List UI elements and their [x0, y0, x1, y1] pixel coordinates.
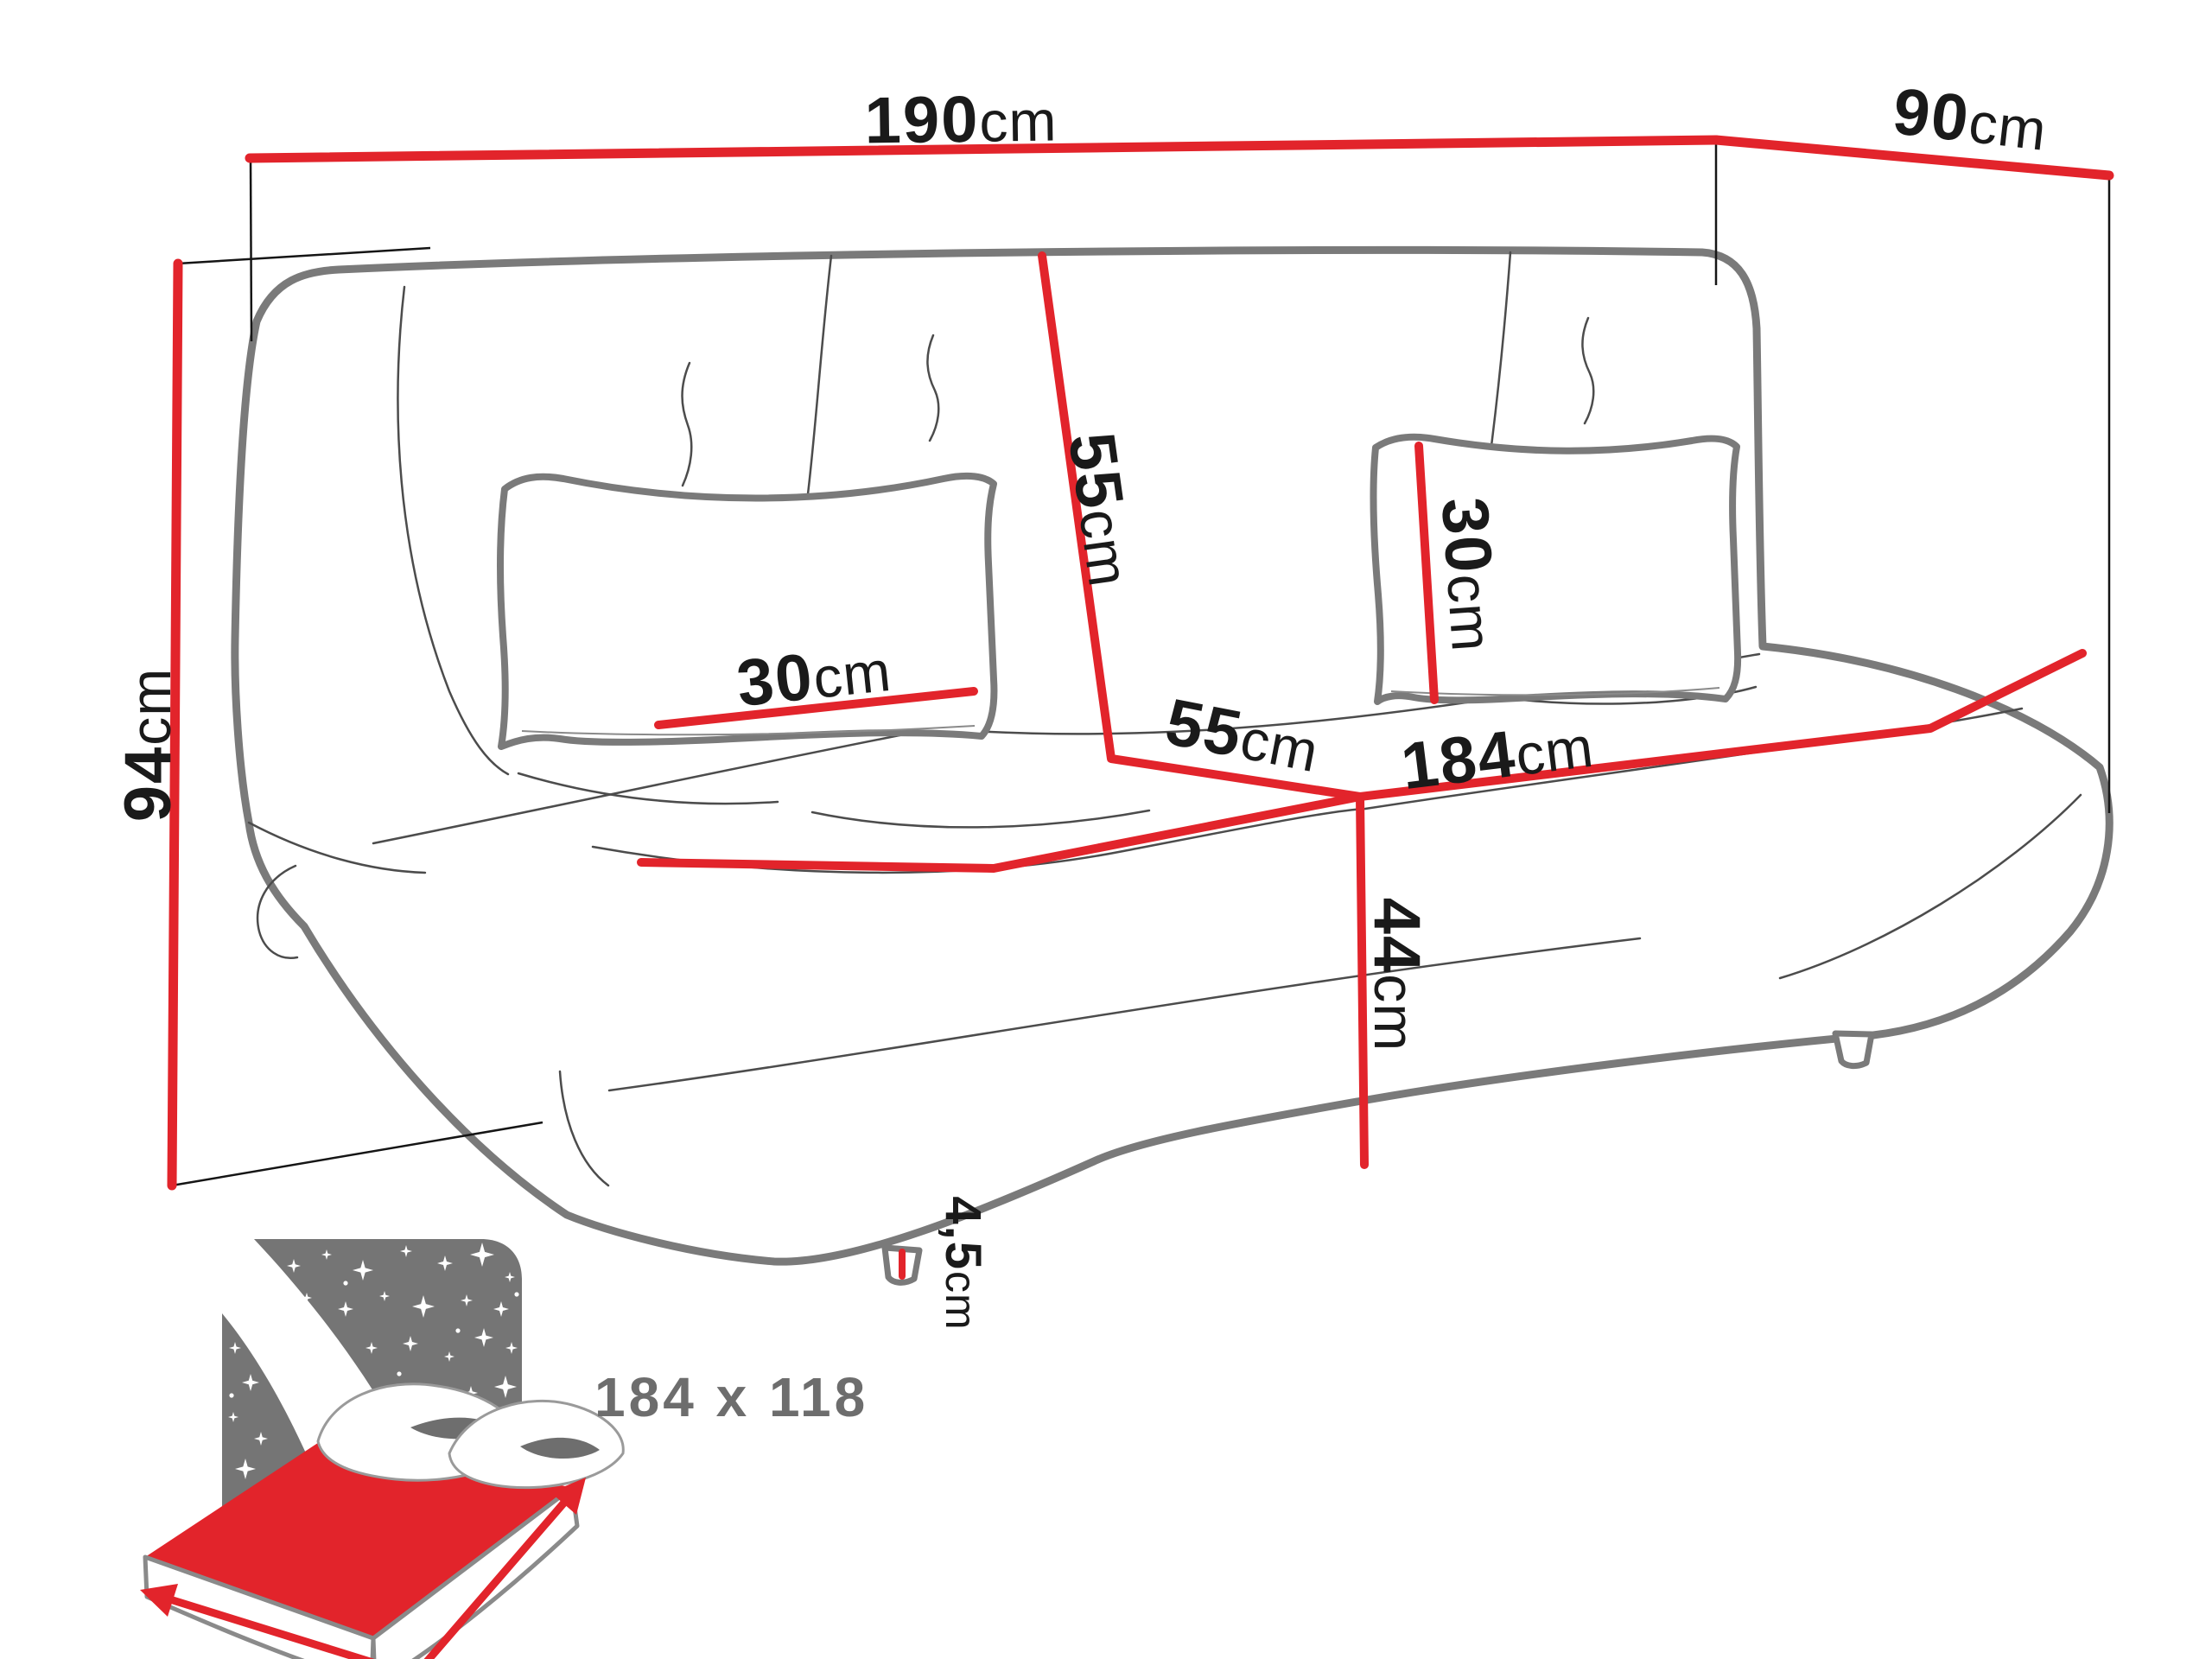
- sleeping-area-size-label: 184 x 118: [594, 1365, 868, 1429]
- width-unit: cm: [979, 88, 1058, 153]
- dimension-label-pillow-right-30: 30cm: [1431, 495, 1507, 653]
- leg-height-value: 4,5: [935, 1196, 991, 1271]
- star-dot-icon: [302, 1319, 306, 1324]
- depth-unit: cm: [1966, 90, 2050, 162]
- seat-height-unit: cm: [1363, 974, 1427, 1052]
- dimension-diagram: 190cm 90cm 94cm 55cm 30cm 30cm 55cm 184c…: [0, 0, 2212, 1659]
- dimension-label-leg-4-5: 4,5cm: [938, 1196, 988, 1330]
- dimension-label-width-190: 190cm: [864, 86, 1058, 154]
- dimension-label-height-94: 94cm: [116, 668, 181, 823]
- star-dot-icon: [455, 1328, 460, 1332]
- guide-left-top-diagonal: [178, 248, 430, 264]
- leg-height-unit: cm: [937, 1271, 985, 1331]
- star-dot-icon: [229, 1393, 233, 1397]
- width-value: 190: [864, 83, 980, 158]
- sleeping-area-bed-icon: [140, 1239, 623, 1659]
- seat-width-value: 184: [1397, 717, 1520, 804]
- pillow-right-value: 30: [1427, 495, 1506, 576]
- backrest-value: 55: [1054, 429, 1137, 515]
- backrest-unit: cm: [1067, 505, 1141, 590]
- guide-left-top-vertical: [251, 158, 251, 341]
- star-dot-icon: [514, 1292, 518, 1296]
- star-dot-icon: [343, 1281, 347, 1285]
- seat-depth-value: 55: [1160, 685, 1249, 772]
- height-value: 94: [111, 746, 185, 823]
- dimension-label-seat-height-44: 44cm: [1363, 898, 1429, 1052]
- seat-width-unit: cm: [1512, 715, 1597, 787]
- sofa-leg-right: [1835, 1033, 1872, 1066]
- height-unit: cm: [118, 668, 182, 746]
- star-dot-icon: [397, 1371, 401, 1376]
- seat-height-value: 44: [1360, 898, 1433, 975]
- pillow-left-value: 30: [734, 639, 817, 721]
- depth-value: 90: [1890, 74, 1974, 156]
- diagram-canvas: [0, 0, 2212, 1659]
- pillow-left-unit: cm: [810, 639, 894, 710]
- star-icon: [318, 1333, 339, 1354]
- pillow-right-unit: cm: [1435, 572, 1504, 654]
